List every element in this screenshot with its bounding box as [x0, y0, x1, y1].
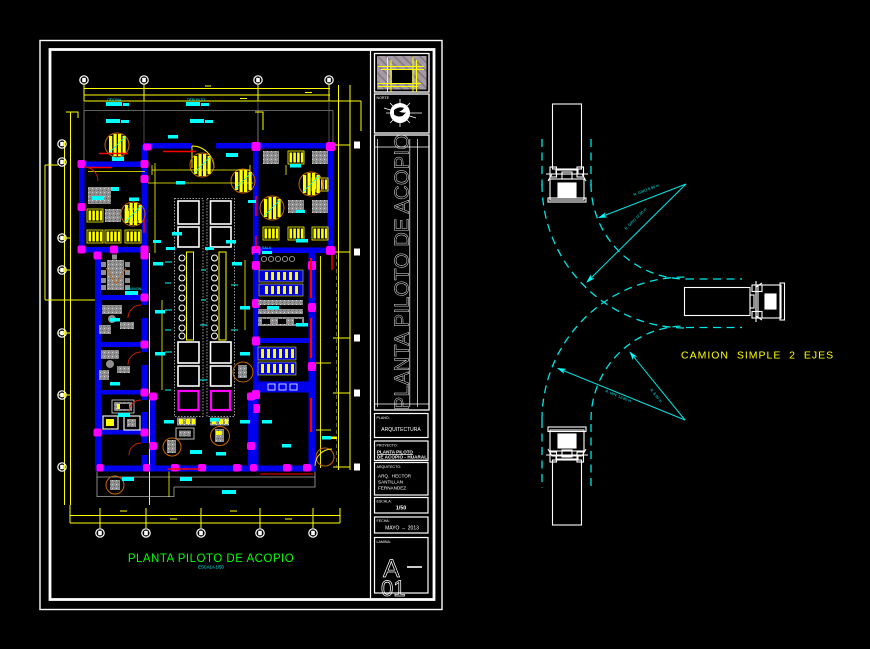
svg-text:01: 01 — [381, 576, 405, 601]
svg-text:ARQUITECTO:: ARQUITECTO: — [377, 465, 402, 469]
svg-text:PLANTA PILOTO DE ACOPIO: PLANTA PILOTO DE ACOPIO — [128, 553, 294, 565]
svg-text:1/50: 1/50 — [396, 506, 407, 512]
svg-text:FERNANDEZ: FERNANDEZ — [378, 486, 406, 491]
svg-text:FECHA:: FECHA: — [377, 519, 390, 523]
svg-text:PLANTA PILOTO DE ACOPIO: PLANTA PILOTO DE ACOPIO — [392, 134, 414, 410]
svg-text:ARQUITECTURA: ARQUITECTURA — [381, 427, 421, 433]
svg-text:PROYECTO:: PROYECTO: — [377, 444, 398, 448]
svg-text:DE ACOPIO - HUARAL: DE ACOPIO - HUARAL — [377, 455, 427, 460]
svg-text:CAMION SIMPLE 2 EJES: CAMION SIMPLE 2 EJES — [681, 350, 834, 362]
svg-text:ESCALA 1/50: ESCALA 1/50 — [198, 565, 224, 570]
svg-text:ARQ. HECTOR: ARQ. HECTOR — [378, 474, 412, 479]
svg-text:SALA: SALA — [262, 246, 272, 250]
svg-text:LAMINA:: LAMINA: — [377, 540, 391, 544]
svg-text:NORTE: NORTE — [377, 96, 390, 100]
svg-text:DEPOSITO: DEPOSITO — [187, 98, 205, 102]
svg-text:MAYO – 2013: MAYO – 2013 — [385, 526, 419, 532]
svg-text:OFICINA: OFICINA — [107, 98, 122, 102]
svg-text:SANTILLAN: SANTILLAN — [378, 480, 403, 485]
svg-text:ESCALA:: ESCALA: — [377, 500, 392, 504]
svg-text:PLANO:: PLANO: — [377, 416, 390, 420]
svg-text:REUNION: REUNION — [125, 287, 142, 291]
